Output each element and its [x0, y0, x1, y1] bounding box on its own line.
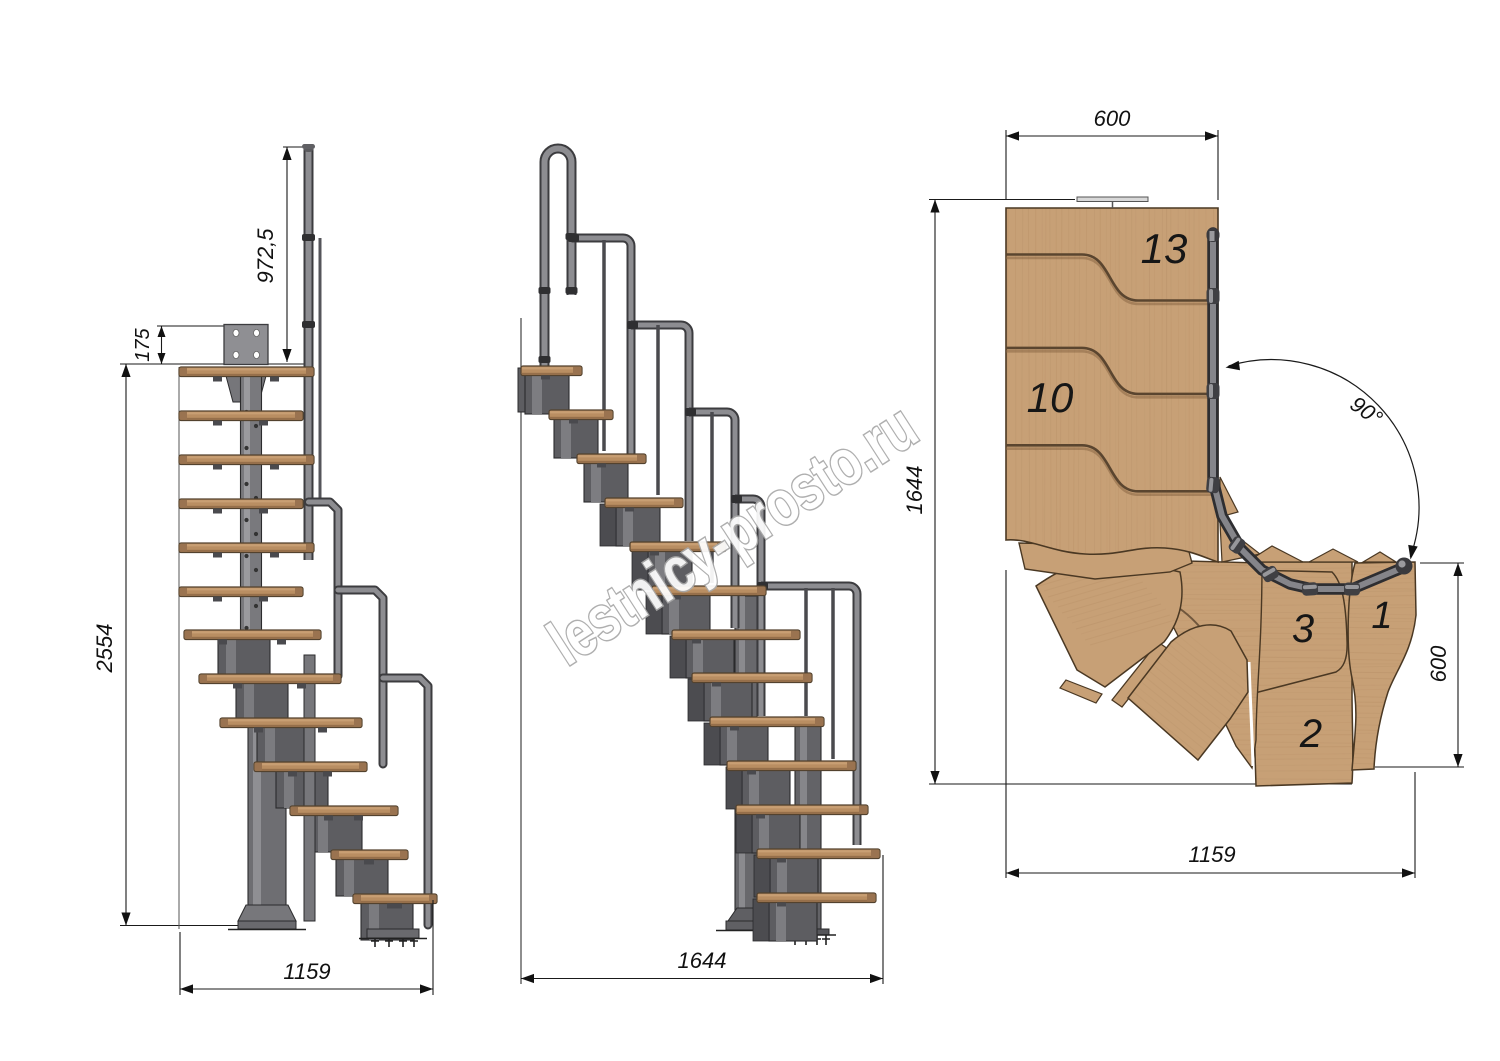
- svg-text:2: 2: [1299, 712, 1322, 756]
- svg-text:972,5: 972,5: [253, 228, 278, 284]
- svg-text:10: 10: [1027, 374, 1074, 421]
- svg-text:600: 600: [1426, 645, 1451, 682]
- svg-text:13: 13: [1141, 225, 1188, 272]
- svg-text:600: 600: [1094, 106, 1131, 131]
- svg-text:1: 1: [1371, 595, 1392, 637]
- svg-text:1159: 1159: [1188, 842, 1235, 867]
- svg-text:2554: 2554: [92, 624, 117, 674]
- svg-text:1644: 1644: [678, 948, 727, 973]
- svg-text:3: 3: [1292, 607, 1314, 651]
- svg-text:1159: 1159: [283, 959, 330, 984]
- svg-text:175: 175: [132, 327, 154, 361]
- svg-text:1644: 1644: [902, 466, 927, 515]
